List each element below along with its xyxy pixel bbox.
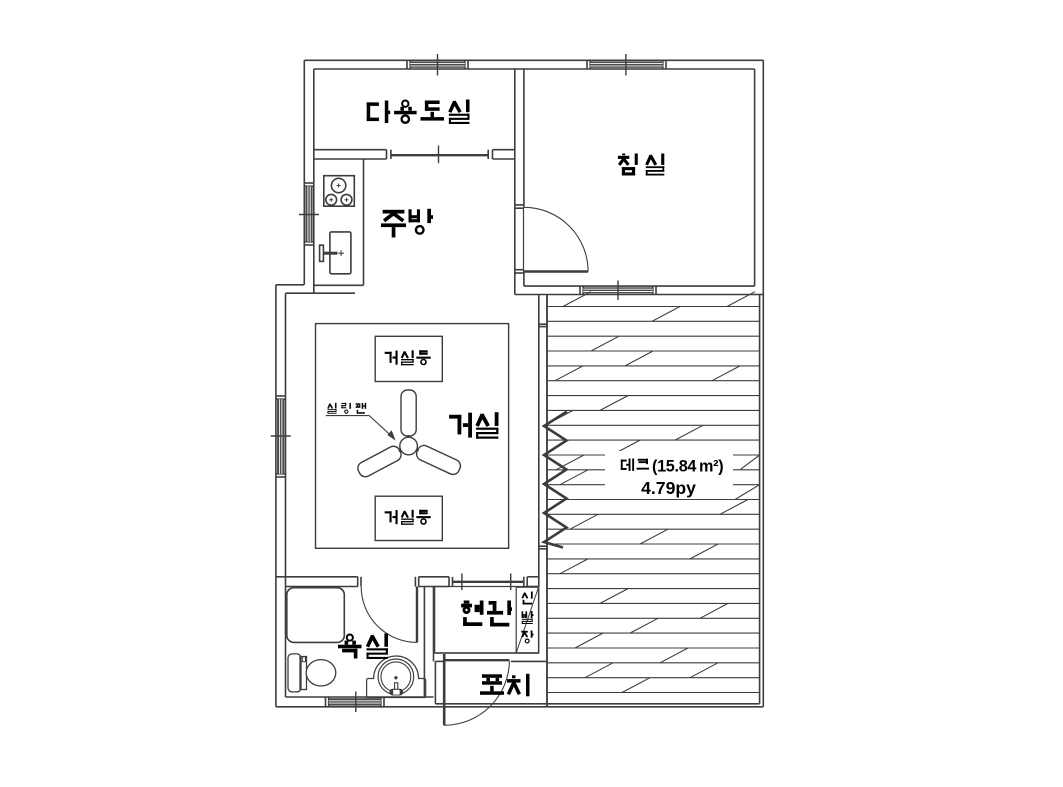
svg-text:4.79py: 4.79py bbox=[641, 478, 696, 498]
svg-text:(15.84 m²): (15.84 m²) bbox=[652, 457, 723, 475]
